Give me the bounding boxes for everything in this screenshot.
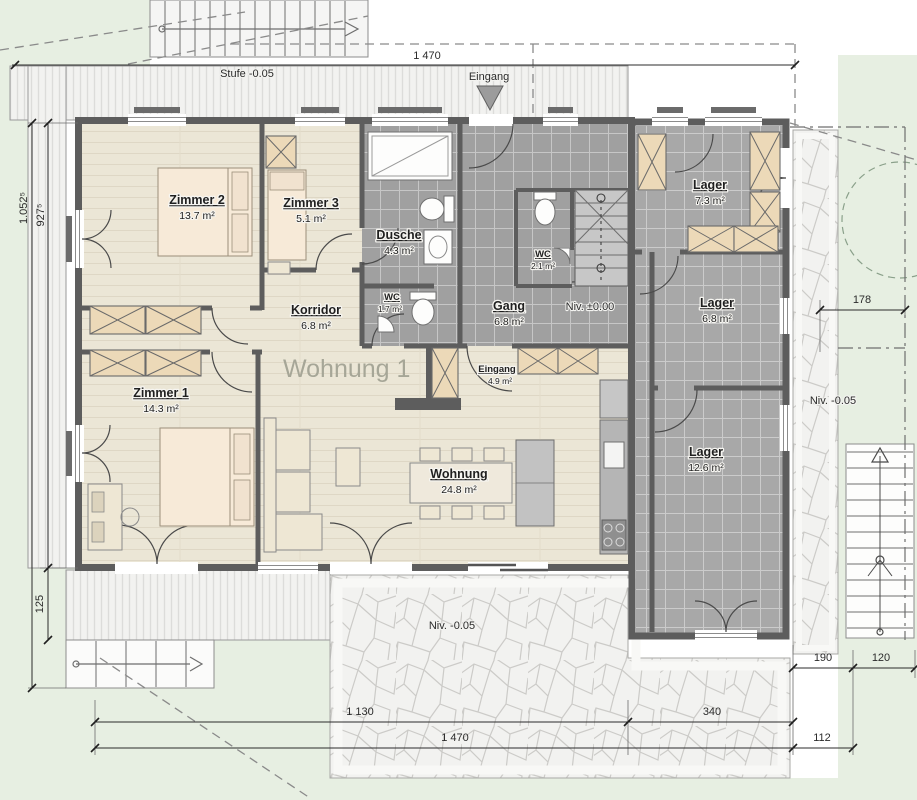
- bathtub: [368, 132, 452, 180]
- room-area-lager3: 12.6 m²: [688, 462, 724, 474]
- dim-112: 112: [813, 732, 831, 744]
- dim-125: 125: [34, 595, 46, 613]
- stair-top: [150, 0, 368, 57]
- dim-927: 927⁵: [35, 204, 47, 227]
- room-label-gang: Gang: [493, 299, 525, 313]
- entry-wall-stub-v: [426, 346, 432, 398]
- room-label-zimmer2: Zimmer 2: [169, 193, 225, 207]
- entry-door-gap: [469, 114, 513, 126]
- room-area-eingang: 4.9 m²: [488, 376, 512, 386]
- window-top-5: [652, 107, 688, 126]
- window-top-4: [543, 107, 578, 126]
- window-wing-right-1: [780, 298, 792, 334]
- dim-340: 340: [703, 706, 721, 718]
- room-label-lager3: Lager: [689, 445, 723, 459]
- room-label-wc1: WC: [384, 292, 400, 303]
- entry-wall-stub-h: [395, 398, 461, 410]
- toilet-dusche: [420, 196, 454, 222]
- niv-terrace-label: Niv. -0.05: [429, 620, 475, 632]
- window-top-1: [128, 107, 186, 126]
- sink-dusche: [424, 230, 452, 264]
- room-label-lager2: Lager: [700, 296, 734, 310]
- stair-interior: [575, 190, 628, 286]
- terrace-bottom-left: [66, 570, 330, 640]
- coffee-table: [336, 448, 360, 486]
- room-area-zimmer2: 13.7 m²: [179, 210, 215, 222]
- room-area-zimmer3: 5.1 m²: [296, 213, 326, 225]
- room-label-zimmer1: Zimmer 1: [133, 386, 189, 400]
- window-wing-right-2: [780, 405, 792, 451]
- window-left-2: [66, 425, 84, 482]
- kitchen-sink: [604, 442, 624, 468]
- dim-1052: 1.052⁵: [18, 192, 30, 224]
- apartment-title: Wohnung 1: [283, 355, 410, 383]
- room-label-korridor: Korridor: [291, 303, 341, 317]
- room-area-wohnung: 24.8 m²: [441, 484, 477, 496]
- lawn-bottom-strip: [330, 778, 917, 800]
- niv-right-label: Niv. -0.05: [810, 395, 856, 407]
- room-label-wohnung: Wohnung: [430, 467, 487, 481]
- room-area-gang: 6.8 m²: [494, 316, 524, 328]
- room-area-wc1: 1.7 m²: [378, 304, 402, 314]
- room-label-lager1: Lager: [693, 178, 727, 192]
- dim-top-1470: 1 470: [413, 50, 441, 62]
- dim-190: 190: [814, 652, 832, 664]
- dim-bottom-1470: 1 470: [441, 732, 469, 744]
- room-area-zimmer1: 14.3 m²: [143, 403, 179, 415]
- window-top-3: [372, 107, 448, 126]
- terrace-left: [28, 66, 66, 568]
- room-label-eingang: Eingang: [478, 364, 516, 375]
- stufe-label: Stufe -0.05: [220, 68, 274, 80]
- window-top-6: [705, 107, 762, 126]
- window-left-1: [66, 210, 84, 268]
- room-area-wc2: 2.1 m²: [531, 261, 555, 271]
- bed-zimmer1: [160, 428, 254, 526]
- room-label-zimmer3: Zimmer 3: [283, 196, 339, 210]
- dim-1130: 1 130: [346, 706, 374, 718]
- room-label-dusche: Dusche: [376, 228, 421, 242]
- room-area-korridor: 6.8 m²: [301, 320, 331, 332]
- dim-right-178: 178: [853, 294, 871, 306]
- window-bottom-1: [258, 562, 318, 574]
- eingang-arrow-label: Eingang: [469, 71, 509, 83]
- slider-bottom: [468, 562, 548, 574]
- dim-120: 120: [872, 652, 890, 664]
- stair-bottom-left: [66, 640, 214, 688]
- floor-plan-page: Wohnung 1 Zimmer 2 13.7 m² Zimmer 3 5.1 …: [0, 0, 917, 800]
- room-area-lager2: 6.8 m²: [702, 313, 732, 325]
- window-top-2: [295, 107, 345, 126]
- room-area-lager1: 7.3 m²: [695, 195, 725, 207]
- room-area-dusche: 4.3 m²: [384, 245, 414, 257]
- floor-plan-svg: Wohnung 1 Zimmer 2 13.7 m² Zimmer 3 5.1 …: [0, 0, 917, 800]
- room-label-wc2: WC: [535, 249, 551, 260]
- stair-right: [846, 444, 914, 638]
- niv-zero-label: Niv. ±0.00: [566, 301, 615, 313]
